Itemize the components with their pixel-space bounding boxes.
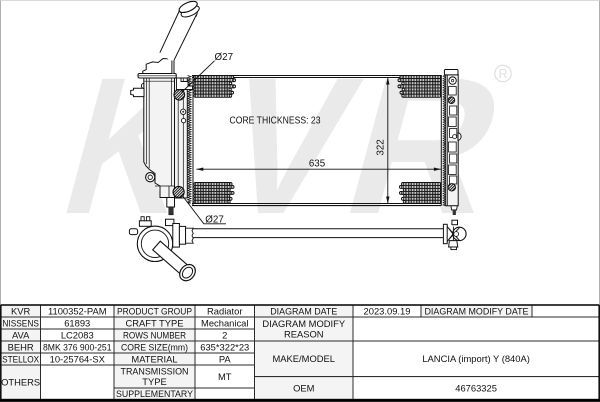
svg-text:CRAFT TYPE: CRAFT TYPE: [126, 317, 184, 328]
svg-text:1100352-PAM: 1100352-PAM: [48, 305, 107, 316]
svg-text:OTHERS: OTHERS: [1, 377, 40, 388]
svg-text:R: R: [498, 67, 507, 81]
svg-text:KVR: KVR: [11, 305, 31, 316]
svg-text:CORE SIZE(mm): CORE SIZE(mm): [121, 341, 188, 352]
svg-text:Mechanical: Mechanical: [201, 317, 248, 328]
svg-text:PA: PA: [219, 353, 232, 364]
svg-text:Ø27: Ø27: [215, 52, 234, 63]
svg-text:DIAGRAM MODIFY DATE: DIAGRAM MODIFY DATE: [425, 305, 529, 316]
svg-text:635: 635: [309, 159, 326, 170]
svg-text:LANCIA (import) Y (840A): LANCIA (import) Y (840A): [422, 353, 530, 364]
svg-text:REASON: REASON: [284, 329, 324, 340]
svg-text:10-25764-SX: 10-25764-SX: [50, 353, 106, 364]
svg-text:LC2083: LC2083: [61, 329, 94, 340]
svg-text:MATERIAL: MATERIAL: [131, 353, 177, 364]
svg-text:TYPE: TYPE: [142, 376, 167, 387]
svg-text:TRANSMISSION: TRANSMISSION: [121, 366, 189, 377]
svg-text:SUPPLEMENTARY: SUPPLEMENTARY: [116, 388, 194, 399]
svg-text:BEHR: BEHR: [8, 341, 34, 352]
svg-text:ROWS NUMBER: ROWS NUMBER: [123, 329, 186, 340]
svg-text:2023.09.19: 2023.09.19: [364, 305, 411, 316]
svg-text:8MK 376 900-251: 8MK 376 900-251: [43, 341, 112, 352]
svg-text:PRODUCT GROUP: PRODUCT GROUP: [117, 305, 192, 316]
svg-text:MT: MT: [218, 371, 232, 382]
svg-text:MAKE/MODEL: MAKE/MODEL: [272, 353, 335, 364]
svg-text:STELLOX: STELLOX: [2, 353, 40, 364]
svg-text:46763325: 46763325: [455, 383, 497, 394]
svg-text:322: 322: [375, 139, 386, 155]
svg-text:2: 2: [222, 329, 227, 340]
svg-text:CORE THICKNESS: 23: CORE THICKNESS: 23: [230, 115, 321, 126]
svg-text:Radiator: Radiator: [207, 305, 242, 316]
svg-text:635*322*23: 635*322*23: [200, 341, 249, 352]
svg-text:DIAGRAM MODIFY: DIAGRAM MODIFY: [262, 318, 346, 329]
svg-text:AVA: AVA: [12, 329, 30, 340]
svg-text:61893: 61893: [64, 317, 90, 328]
svg-text:DIAGRAM DATE: DIAGRAM DATE: [270, 305, 337, 316]
svg-text:NISSENS: NISSENS: [2, 317, 39, 328]
svg-text:OEM: OEM: [293, 383, 315, 394]
